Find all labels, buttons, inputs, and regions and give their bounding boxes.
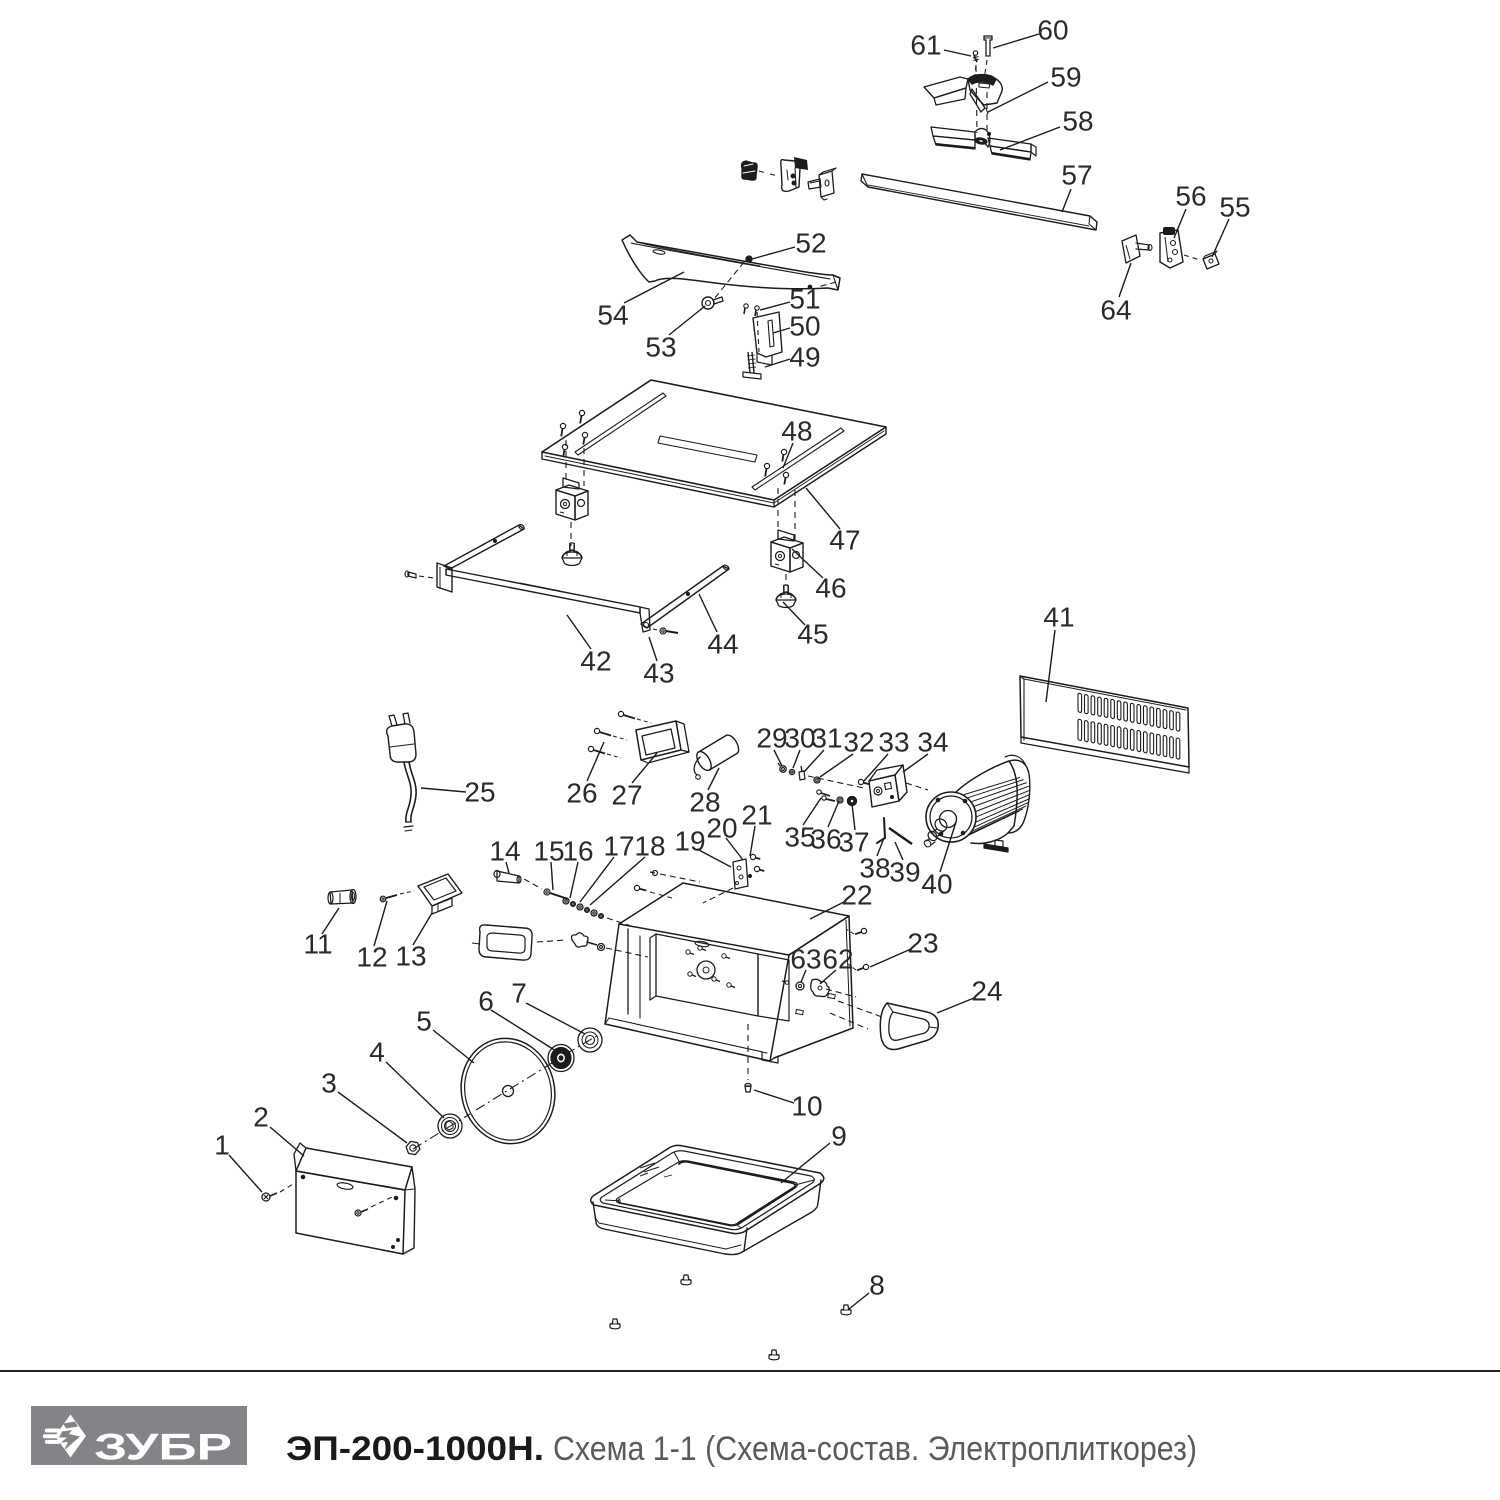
svg-text:1: 1 [214, 1130, 230, 1161]
svg-text:52: 52 [795, 228, 826, 259]
svg-text:49: 49 [789, 342, 820, 373]
svg-text:4: 4 [369, 1037, 385, 1068]
svg-text:19: 19 [674, 826, 705, 857]
svg-text:8: 8 [869, 1270, 885, 1301]
svg-text:44: 44 [707, 629, 738, 660]
svg-text:62: 62 [822, 944, 853, 975]
svg-text:16: 16 [562, 836, 593, 867]
svg-text:26: 26 [566, 778, 597, 809]
svg-text:33: 33 [878, 727, 909, 758]
svg-text:48: 48 [781, 416, 812, 447]
svg-text:58: 58 [1062, 106, 1093, 137]
svg-text:39: 39 [889, 857, 920, 888]
svg-text:36: 36 [810, 824, 841, 855]
svg-text:3: 3 [321, 1068, 337, 1099]
svg-text:41: 41 [1043, 602, 1074, 633]
svg-text:25: 25 [464, 777, 495, 808]
svg-text:ЗУБР: ЗУБР [94, 1427, 232, 1468]
svg-text:6: 6 [478, 986, 494, 1017]
svg-text:43: 43 [643, 658, 674, 689]
svg-text:55: 55 [1219, 192, 1250, 223]
svg-text:40: 40 [921, 869, 952, 900]
svg-text:2: 2 [253, 1102, 269, 1133]
svg-text:53: 53 [645, 332, 676, 363]
svg-text:24: 24 [971, 976, 1002, 1007]
svg-text:29: 29 [756, 723, 787, 754]
svg-text:50: 50 [789, 311, 820, 342]
svg-text:32: 32 [843, 727, 874, 758]
svg-text:5: 5 [416, 1006, 432, 1037]
svg-text:59: 59 [1050, 62, 1081, 93]
svg-text:15: 15 [533, 836, 564, 867]
svg-text:63: 63 [790, 944, 821, 975]
svg-text:23: 23 [907, 928, 938, 959]
svg-text:14: 14 [489, 836, 520, 867]
svg-text:54: 54 [597, 300, 628, 331]
svg-text:13: 13 [395, 941, 426, 972]
svg-text:46: 46 [815, 573, 846, 604]
svg-text:7: 7 [511, 978, 527, 1009]
svg-text:12: 12 [356, 942, 387, 973]
svg-text:22: 22 [841, 880, 872, 911]
svg-text:27: 27 [611, 780, 642, 811]
svg-text:34: 34 [917, 727, 948, 758]
svg-text:ЭП-200-1000Н.Схема 1-1 (Схема-: ЭП-200-1000Н.Схема 1-1 (Схема-состав. Эл… [286, 1430, 1197, 1468]
svg-text:60: 60 [1037, 15, 1068, 46]
svg-text:21: 21 [741, 800, 772, 831]
svg-text:56: 56 [1175, 181, 1206, 212]
svg-text:45: 45 [797, 619, 828, 650]
svg-text:31: 31 [811, 723, 842, 754]
svg-text:10: 10 [791, 1091, 822, 1122]
svg-text:61: 61 [910, 30, 941, 61]
svg-text:18: 18 [634, 831, 665, 862]
svg-text:20: 20 [706, 813, 737, 844]
svg-text:64: 64 [1100, 295, 1131, 326]
svg-text:42: 42 [580, 646, 611, 677]
svg-text:9: 9 [831, 1121, 847, 1152]
svg-text:11: 11 [303, 929, 332, 960]
svg-text:47: 47 [829, 525, 860, 556]
svg-text:17: 17 [603, 831, 634, 862]
svg-text:57: 57 [1061, 160, 1092, 191]
